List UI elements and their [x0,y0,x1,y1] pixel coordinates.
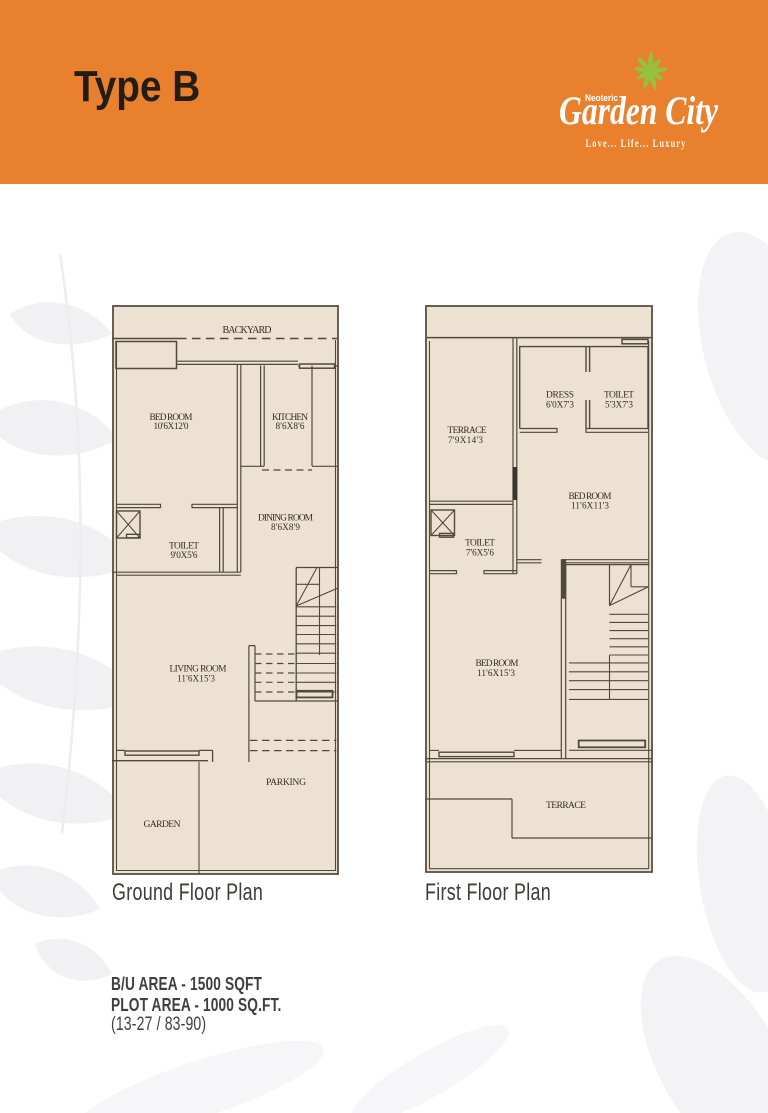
svg-text:GARDEN: GARDEN [144,819,181,830]
svg-text:7'6X5'6: 7'6X5'6 [466,548,494,558]
svg-text:Garden City: Garden City [559,88,718,133]
svg-text:7'9X14'3: 7'9X14'3 [448,435,483,445]
svg-text:BACKYARD: BACKYARD [223,325,272,336]
svg-text:6'0X7'3: 6'0X7'3 [546,400,574,410]
svg-text:10'6X12'0: 10'6X12'0 [154,421,189,431]
svg-text:TERRACE: TERRACE [546,800,586,811]
svg-text:8'6X8'9: 8'6X8'9 [271,522,300,532]
svg-text:11'6X15'3: 11'6X15'3 [177,674,215,684]
svg-text:11'6X11'3: 11'6X11'3 [571,501,609,511]
svg-text:11'6X15'3: 11'6X15'3 [477,668,515,678]
svg-text:Love... Life... Luxury: Love... Life... Luxury [586,138,687,150]
svg-text:8'6X8'6: 8'6X8'6 [276,421,305,431]
svg-text:9'0X5'6: 9'0X5'6 [171,550,198,560]
svg-text:PARKING: PARKING [266,777,306,788]
svg-text:5'3X7'3: 5'3X7'3 [605,400,633,410]
